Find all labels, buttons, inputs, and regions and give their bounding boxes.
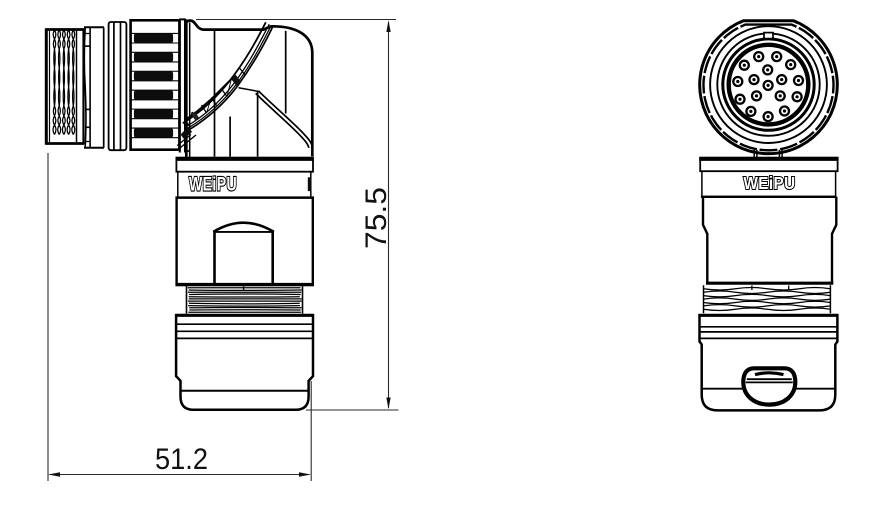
svg-text:WEiPU: WEiPU bbox=[744, 173, 796, 193]
svg-text:51.2: 51.2 bbox=[155, 443, 208, 476]
svg-text:75.5: 75.5 bbox=[360, 187, 393, 249]
svg-text:WEiPU: WEiPU bbox=[189, 174, 237, 196]
